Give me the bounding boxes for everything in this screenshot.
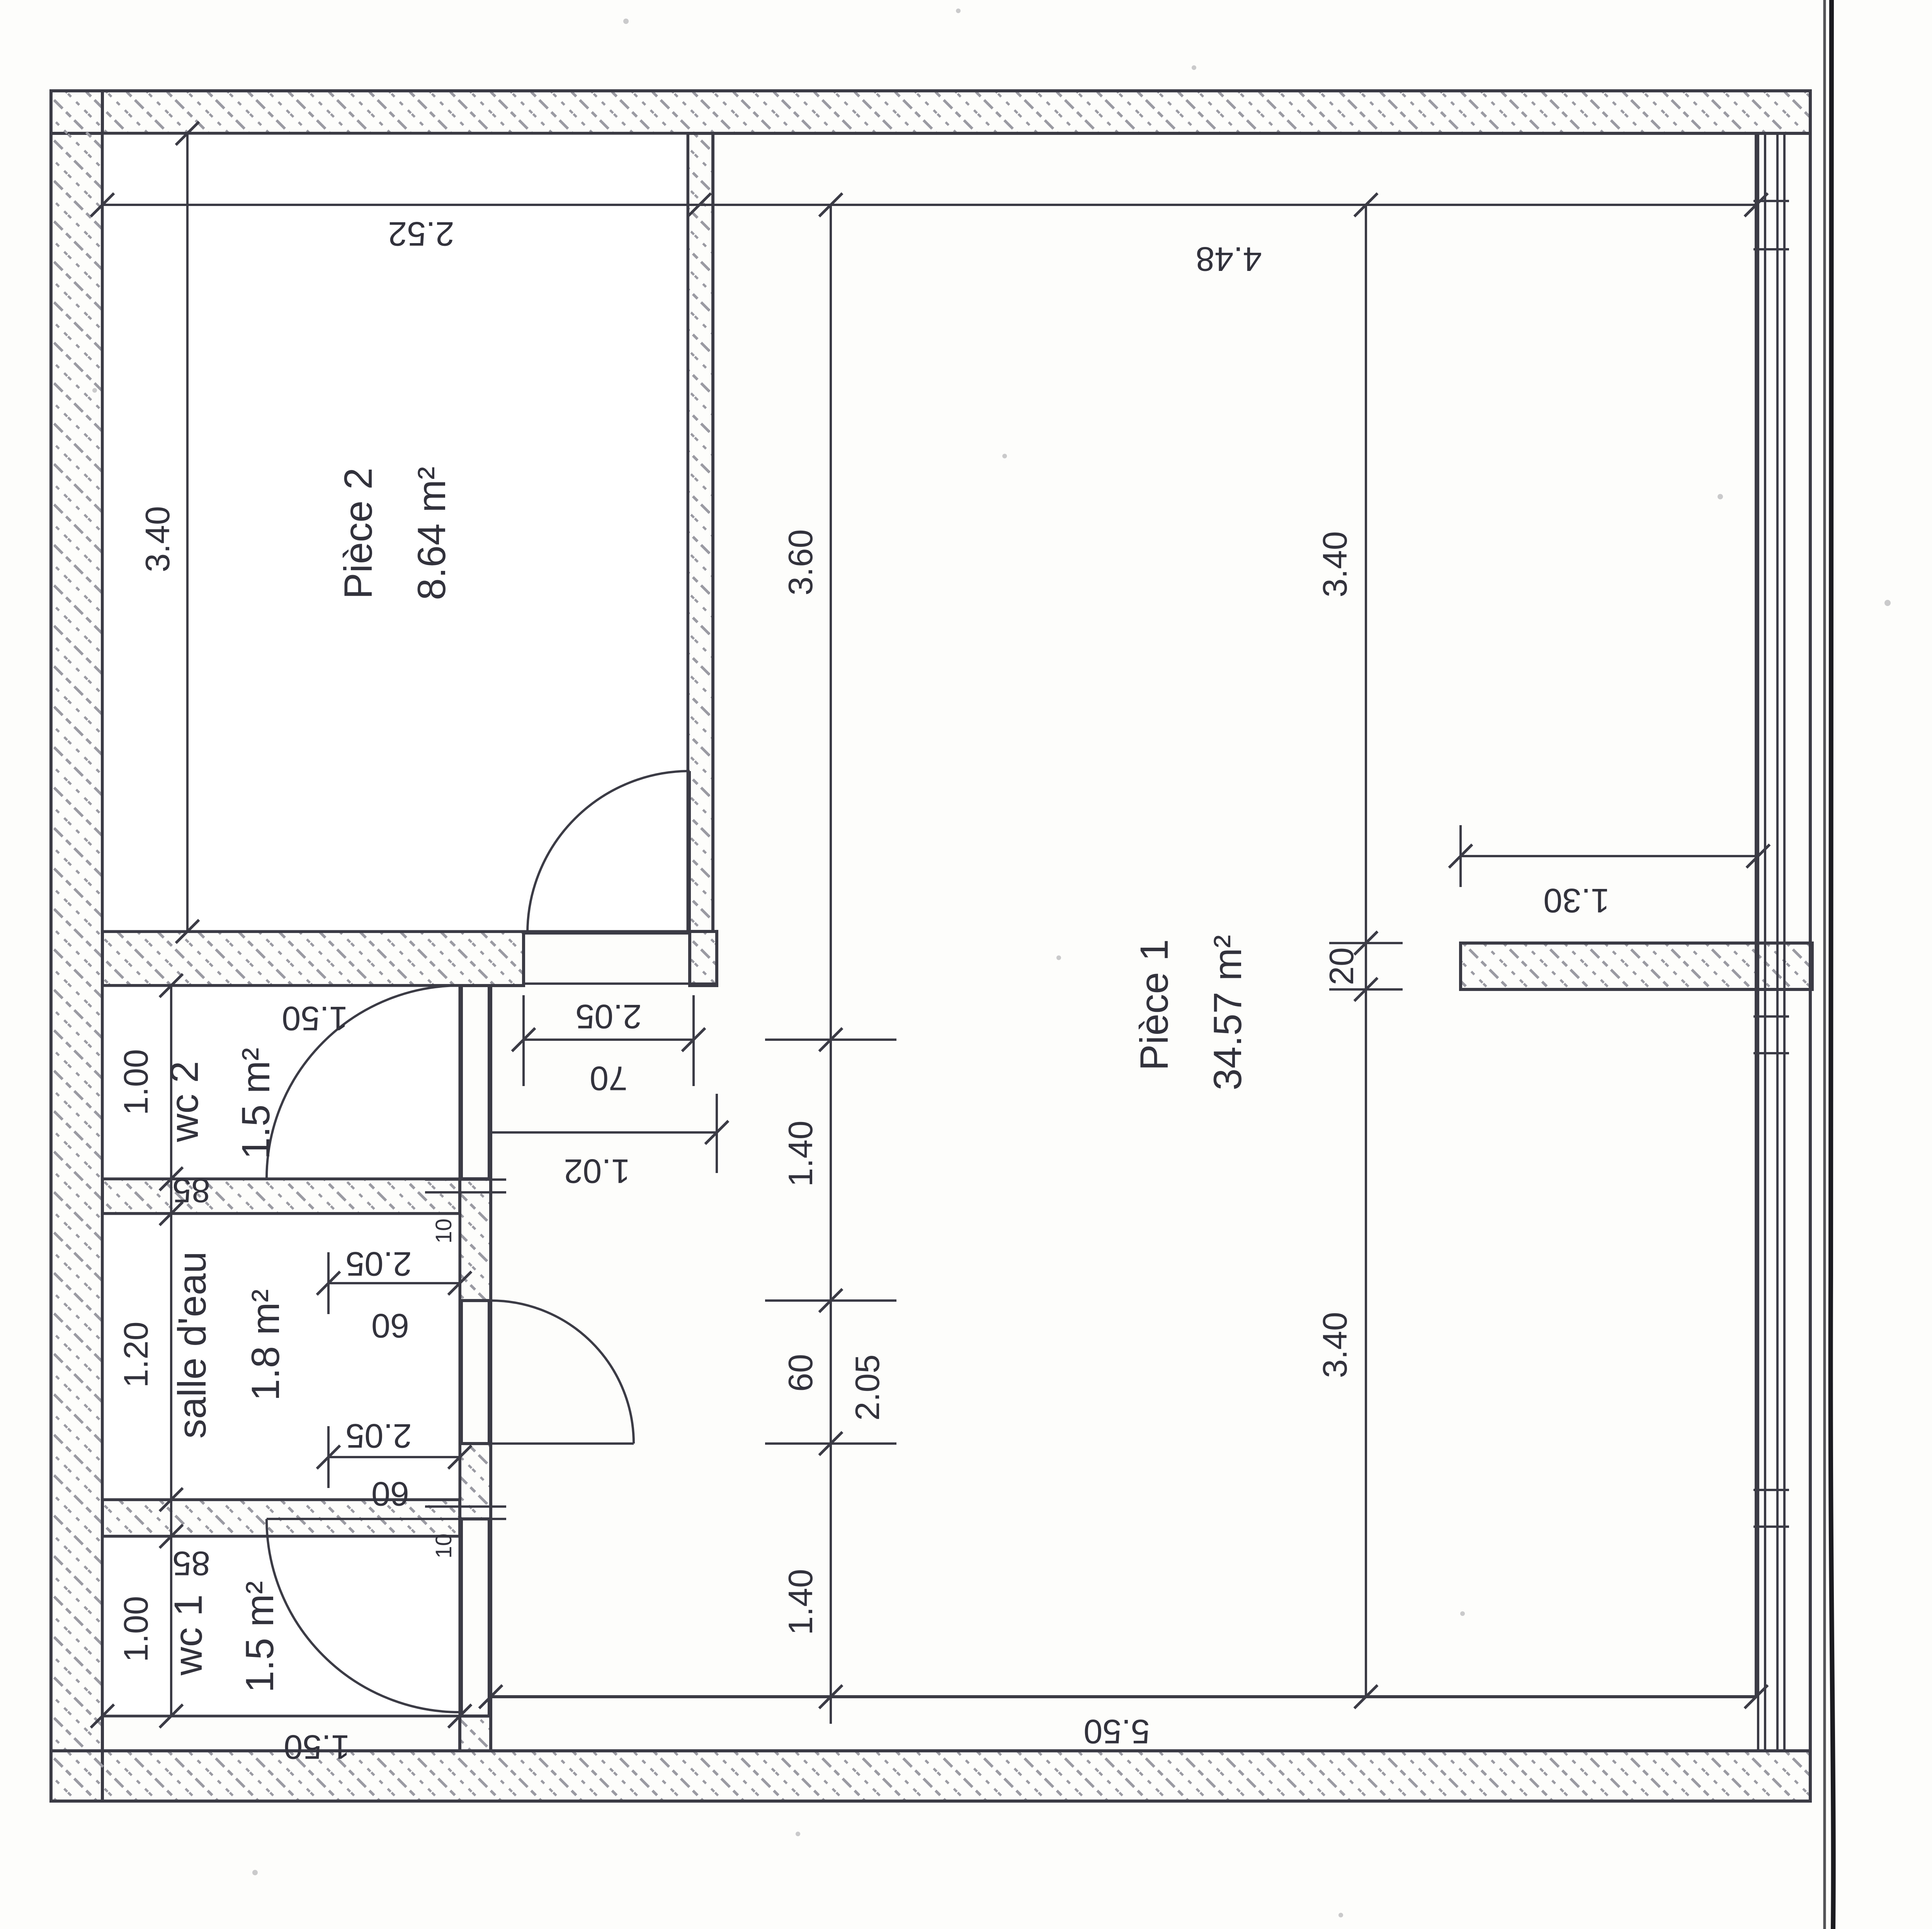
wall-stub-piece1: [1461, 943, 1812, 989]
scan-speck: [1056, 955, 1061, 960]
wall-outer-top: [51, 91, 1810, 133]
room-piece2-name: Pièce 2: [336, 468, 380, 599]
dim-wc2-depth-label: 1.00: [117, 1049, 155, 1115]
dim-right-bottom-label: 3.40: [1316, 1312, 1354, 1378]
dim-line-stub: [1461, 825, 1758, 887]
piece2-door-opening-edges: [524, 933, 717, 984]
dim-piece1-bottom-width-label: 5.50: [1083, 1713, 1150, 1751]
dim-wc1-depth-label: 1.00: [117, 1596, 155, 1662]
dim-center-bottom-label: 1.40: [781, 1569, 820, 1635]
wall-divider-piece2-piece1: [688, 133, 713, 931]
room-wc2-outline: [102, 986, 460, 1179]
room-wc1-name: wc 1: [166, 1594, 210, 1676]
floor-plan-canvas: 2.52 4.48 1.50 2.05 70 1.02 2.05 60 2.05…: [0, 0, 1932, 1929]
dim-piece2-height-label: 3.40: [138, 506, 177, 572]
wall-piece2-bottom: [102, 931, 524, 986]
room-piece1-area: 34.57 m²: [1206, 935, 1250, 1091]
dim-center-door-height-label: 2.05: [848, 1354, 886, 1420]
wc1-door-opening-edges: [462, 1519, 489, 1716]
room-piece1-name: Pièce 1: [1132, 939, 1176, 1071]
scan-speck: [956, 9, 961, 13]
scan-speck: [1460, 1611, 1465, 1616]
scan-speck: [1192, 65, 1196, 70]
dim-hall-width-label: 1.02: [564, 1152, 630, 1190]
salledeau-door-arc: [491, 1301, 634, 1444]
scan-speck: [1718, 494, 1723, 499]
scan-speck: [1002, 454, 1007, 458]
dim-piece1-width-label: 4.48: [1196, 240, 1262, 278]
room-salledeau-name: salle d'eau: [170, 1251, 214, 1439]
room-piece2-area: 8.64 m²: [410, 467, 454, 600]
dim-wall-stub-thickness-label: 20: [1322, 947, 1361, 985]
dim-wc2-width-label: 1.50: [282, 999, 348, 1038]
dim-wc1-width-label: 1.50: [284, 1728, 350, 1766]
wall-wcblock-right-a: [460, 1179, 491, 1301]
dim-piece2-width-label: 2.52: [388, 215, 454, 253]
wall-outer-left: [51, 91, 102, 1801]
dim-wc2-door-label: 85: [172, 1171, 210, 1210]
room-wc1-area: 1.5 m²: [238, 1581, 282, 1692]
dim-wc2-wall-thickness-label: 10: [431, 1219, 456, 1244]
scan-speck: [92, 388, 97, 393]
dim-wc1-door-label: 85: [172, 1544, 210, 1583]
dim-se-door2-height-label: 2.05: [345, 1417, 412, 1455]
wall-piece2-door-jamb: [690, 931, 717, 986]
room-salledeau-area: 1.8 m²: [243, 1289, 287, 1401]
wc2-door-opening-edges: [462, 986, 489, 1179]
dim-center-door-width-label: 60: [781, 1354, 820, 1392]
room-wc2-name: wc 2: [162, 1061, 206, 1142]
room-wc2-area: 1.5 m²: [234, 1047, 278, 1159]
dim-center-top-label: 3.60: [781, 529, 820, 595]
dim-right-top-label: 3.40: [1316, 531, 1354, 597]
scan-speck: [1338, 1913, 1343, 1917]
salledeau-door-opening-edges: [462, 1301, 489, 1444]
dim-piece2-door-width-label: 70: [590, 1059, 628, 1098]
dim-center-mid-label: 1.40: [781, 1120, 820, 1187]
dim-se-door1-height-label: 2.05: [345, 1245, 412, 1283]
scan-speck: [623, 19, 629, 24]
dim-wc1-wall-thickness-label: 10: [431, 1534, 456, 1559]
dim-piece2-door-height-label: 2.05: [575, 998, 641, 1036]
dim-se-depth-label: 1.20: [117, 1321, 155, 1388]
dim-se-door1-width-label: 60: [371, 1307, 409, 1345]
scan-edge-line: [1831, 0, 1833, 1929]
dim-wall-stub-length-label: 1.30: [1543, 882, 1609, 920]
wall-wcblock-right-c: [460, 1716, 491, 1751]
scan-speck: [1884, 600, 1891, 606]
wall-wc2-salledeau: [102, 1179, 460, 1214]
scan-speck: [252, 1870, 258, 1875]
scan-edge-line-2: [1824, 0, 1825, 1929]
scan-speck: [796, 1832, 800, 1836]
dim-se-door2-width-label: 60: [371, 1475, 409, 1513]
